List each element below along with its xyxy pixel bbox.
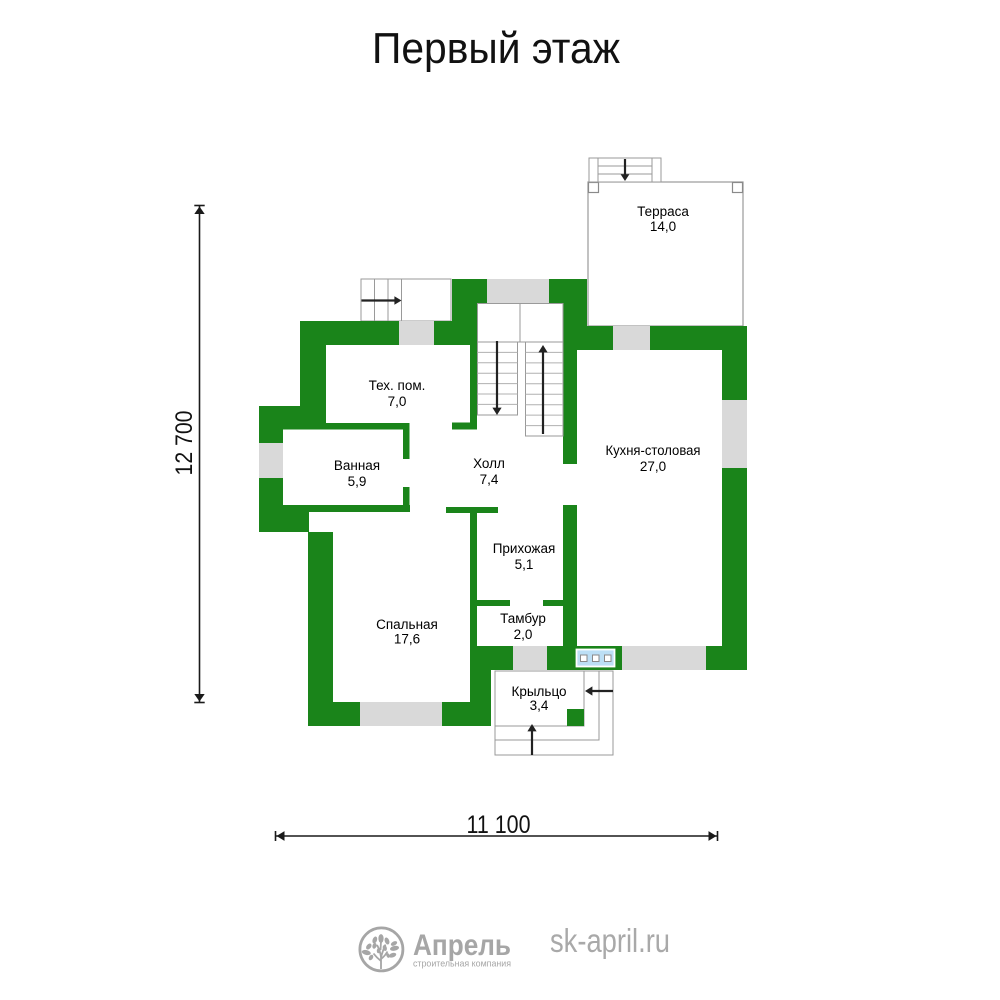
svg-text:3,4: 3,4: [530, 698, 549, 713]
svg-text:Тех. пом.: Тех. пом.: [369, 378, 426, 393]
svg-text:Прихожая: Прихожая: [493, 541, 556, 556]
svg-text:5,9: 5,9: [348, 474, 367, 489]
svg-text:Холл: Холл: [473, 456, 505, 471]
svg-text:Крыльцо: Крыльцо: [511, 684, 566, 699]
svg-text:Ванная: Ванная: [334, 458, 380, 473]
svg-text:14,0: 14,0: [650, 219, 676, 234]
svg-text:7,4: 7,4: [480, 472, 499, 487]
svg-text:Спальная: Спальная: [376, 617, 438, 632]
svg-text:2,0: 2,0: [514, 627, 533, 642]
svg-text:Апрель: Апрель: [413, 929, 511, 962]
svg-text:Первый этаж: Первый этаж: [372, 24, 621, 73]
svg-text:строительная компания: строительная компания: [413, 959, 511, 969]
svg-text:Тамбур: Тамбур: [500, 611, 546, 626]
svg-text:Терраса: Терраса: [637, 204, 689, 219]
svg-text:5,1: 5,1: [515, 557, 534, 572]
svg-text:27,0: 27,0: [640, 459, 666, 474]
svg-text:7,0: 7,0: [388, 394, 407, 409]
svg-text:11 100: 11 100: [467, 811, 531, 839]
svg-text:sk-april.ru: sk-april.ru: [550, 922, 670, 959]
svg-text:Кухня-столовая: Кухня-столовая: [606, 443, 701, 458]
svg-text:17,6: 17,6: [394, 632, 420, 647]
svg-text:12 700: 12 700: [171, 411, 198, 476]
